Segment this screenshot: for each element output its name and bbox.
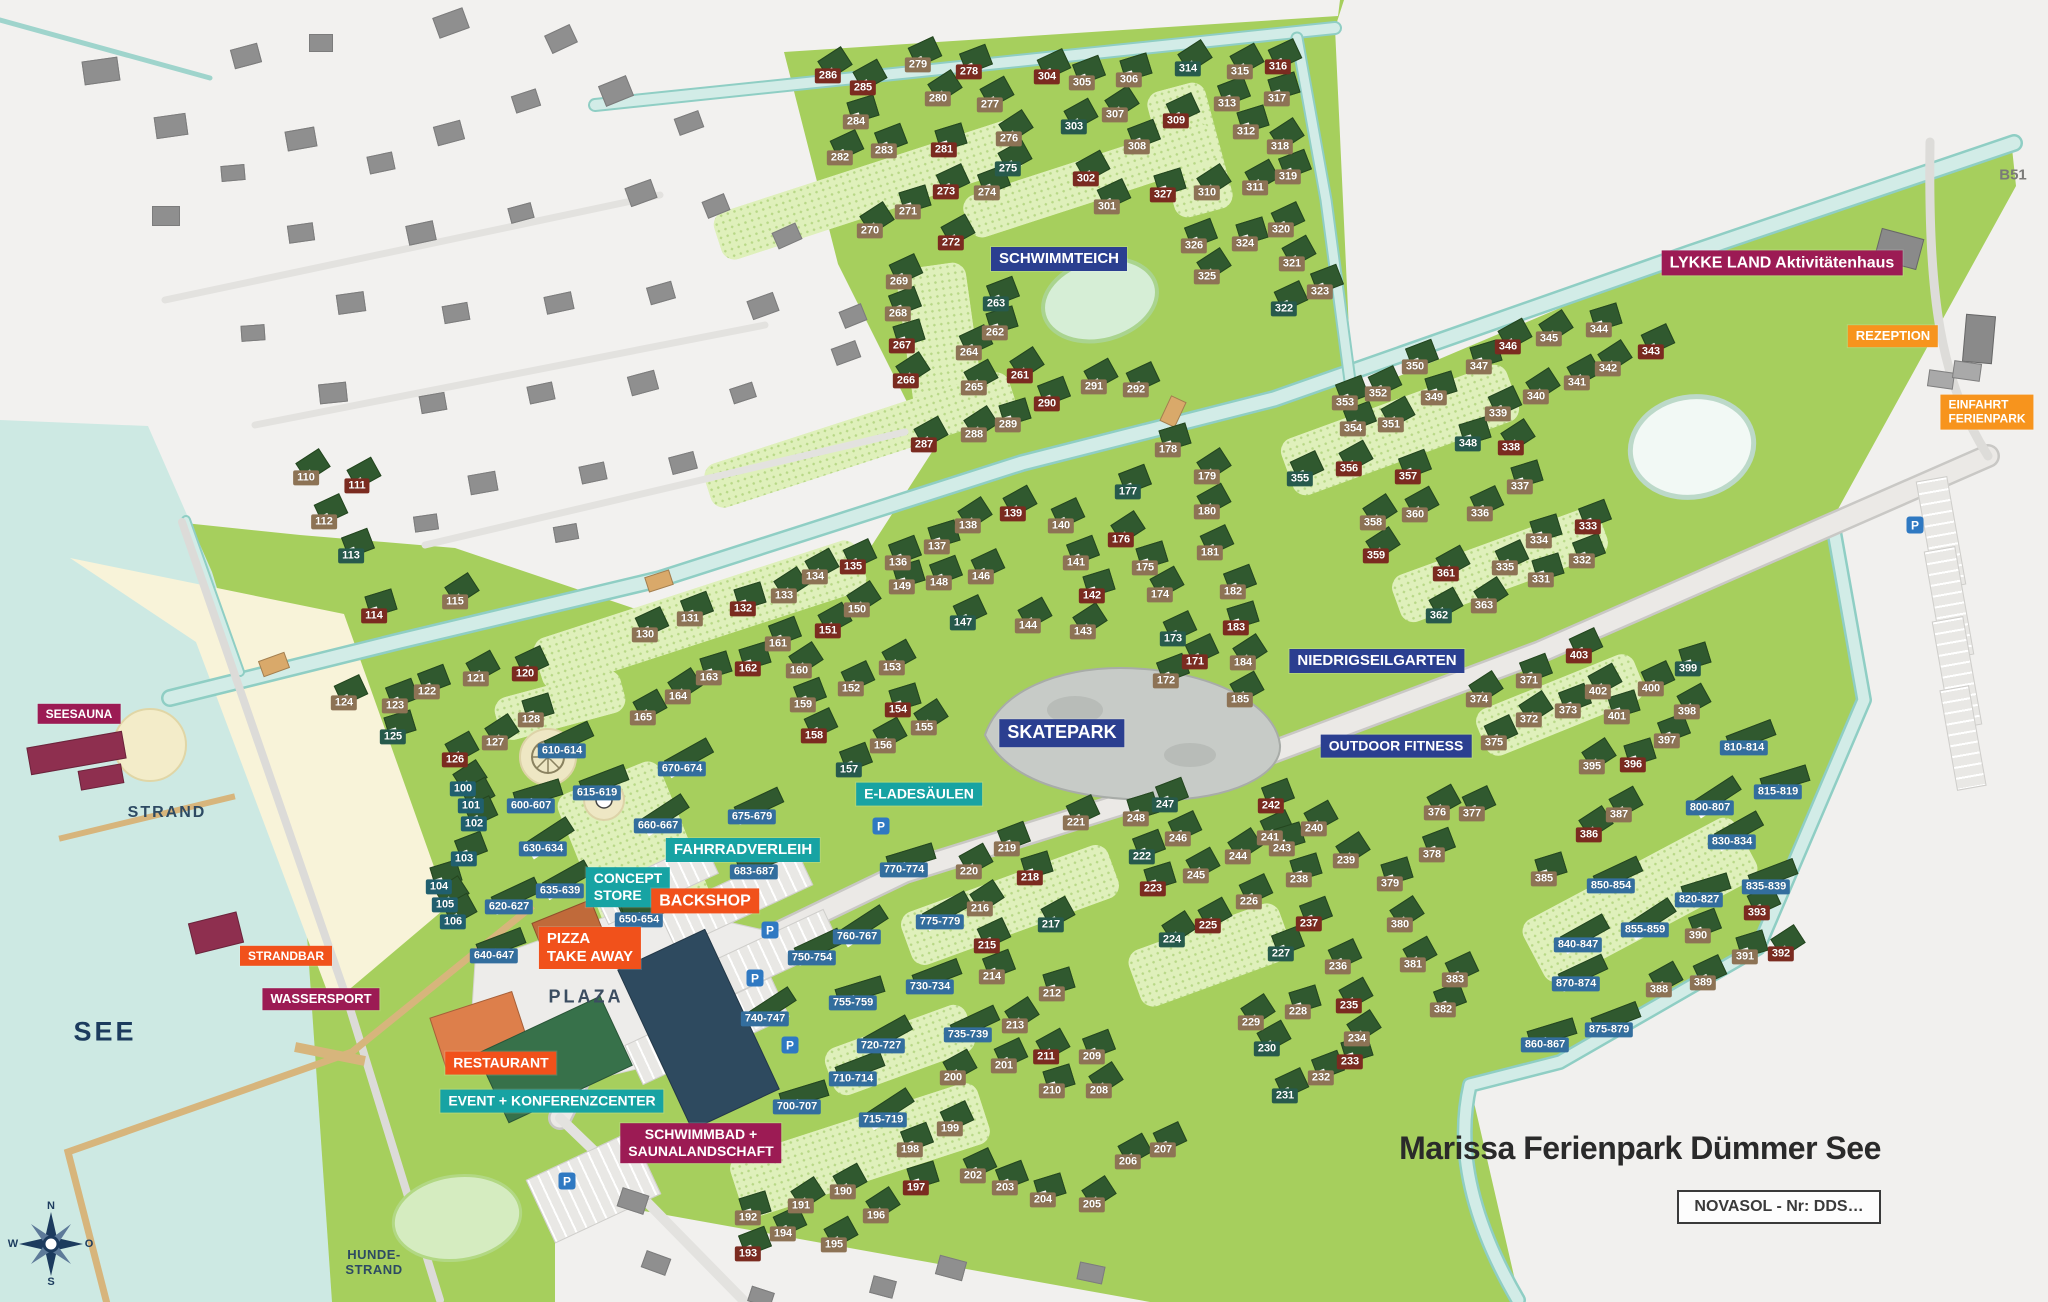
map-title: Marissa Ferienpark Dümmer See [1390, 1130, 1890, 1167]
parking-icon: P [559, 1173, 576, 1190]
label-fahrradverleih: FAHRRADVERLEIH [666, 838, 820, 862]
parking-icon: P [873, 818, 890, 835]
parking-icon: P [747, 970, 764, 987]
label-rezeption: REZEPTION [1848, 325, 1938, 347]
text-see: SEE [73, 1016, 136, 1047]
label-backshop: BACKSHOP [651, 888, 759, 913]
park-map: 2862852792782842802772822832812762752732… [0, 0, 2048, 1302]
compass-letter: N [47, 1200, 55, 1212]
text-b51: B51 [1999, 166, 2027, 183]
label-pizza-take-away: PIZZA TAKE AWAY [539, 927, 641, 969]
label-outdoor-fitness: OUTDOOR FITNESS [1321, 735, 1472, 758]
label-restaurant: RESTAURANT [445, 1052, 556, 1075]
label-schwimmbad-saunalandschaft: SCHWIMMBAD + SAUNALANDSCHAFT [620, 1123, 781, 1163]
text-strand: STRAND [128, 804, 207, 822]
label-niedrigseilgarten: NIEDRIGSEILGARTEN [1289, 649, 1464, 673]
label-e-lades-ulen: E-LADESÄULEN [856, 783, 982, 806]
label-wassersport: WASSERSPORT [262, 988, 379, 1010]
text-plaza: PLAZA [549, 987, 624, 1008]
label-skatepark: SKATEPARK [999, 719, 1124, 747]
label-lykke-land-aktivit-tenhaus: LYKKE LAND Aktivitätenhaus [1662, 250, 1903, 275]
label-strandbar: STRANDBAR [240, 946, 332, 966]
novasol-badge: NOVASOL - Nr: DDS… [1677, 1190, 1881, 1224]
text-hunde-strand: HUNDE- STRAND [345, 1248, 402, 1278]
labels-layer: PPPPPPSCHWIMMTEICHLYKKE LAND Aktivitäten… [0, 0, 2048, 1302]
label-schwimmteich: SCHWIMMTEICH [991, 247, 1127, 271]
label-event-konferenzcenter: EVENT + KONFERENZCENTER [440, 1090, 663, 1113]
parking-icon: P [1907, 517, 1924, 534]
parking-icon: P [782, 1037, 799, 1054]
compass-letter: O [85, 1238, 94, 1250]
compass-letter: W [8, 1238, 18, 1250]
label-seesauna: SEESAUNA [38, 704, 121, 724]
label-einfahrt-ferienpark: EINFAHRT FERIENPARK [1940, 395, 2033, 430]
parking-icon: P [762, 922, 779, 939]
compass-letter: S [47, 1276, 54, 1288]
